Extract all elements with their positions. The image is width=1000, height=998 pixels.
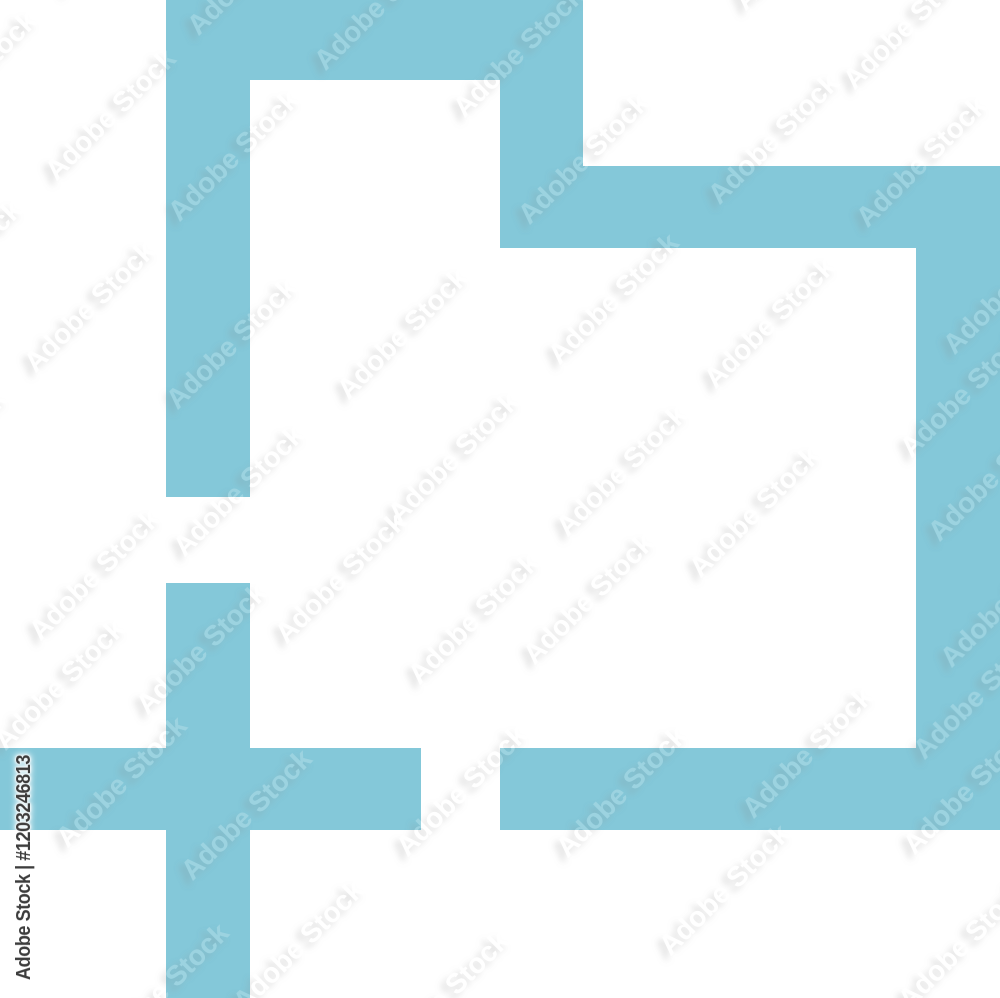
svg-text:Adobe Stock: Adobe Stock [181, 0, 324, 41]
svg-text:Adobe Stock: Adobe Stock [736, 681, 879, 824]
svg-text:Adobe Stock: Adobe Stock [227, 874, 370, 998]
svg-text:Adobe Stock: Adobe Stock [0, 5, 43, 148]
svg-text:Adobe Stock: Adobe Stock [934, 530, 1000, 673]
svg-text:Adobe Stock: Adobe Stock [837, 0, 980, 95]
svg-text:Adobe Stock: Adobe Stock [517, 527, 660, 670]
svg-text:Adobe Stock: Adobe Stock [175, 743, 318, 886]
svg-text:Adobe Stock: Adobe Stock [162, 84, 305, 227]
svg-text:Adobe Stock: Adobe Stock [0, 613, 131, 756]
svg-text:Adobe Stock: Adobe Stock [50, 710, 193, 853]
svg-text:Adobe Stock: Adobe Stock [698, 251, 841, 394]
svg-text:Adobe Stock: Adobe Stock [18, 235, 161, 378]
svg-text:Adobe Stock: Adobe Stock [92, 917, 235, 998]
svg-text:Adobe Stock: Adobe Stock [382, 386, 525, 529]
svg-text:Adobe Stock: Adobe Stock [308, 0, 451, 76]
svg-text:Adobe Stock: Adobe Stock [542, 227, 685, 370]
svg-text:Adobe Stock: Adobe Stock [269, 506, 412, 649]
svg-text:Adobe Stock: Adobe Stock [447, 0, 590, 123]
svg-text:Adobe Stock: Adobe Stock [390, 719, 533, 862]
svg-text:Adobe Stock: Adobe Stock [550, 399, 693, 542]
svg-text:Adobe Stock: Adobe Stock [850, 90, 993, 233]
svg-text:Adobe Stock: Adobe Stock [402, 547, 545, 690]
svg-text:Adobe Stock: Adobe Stock [728, 0, 871, 16]
svg-text:Adobe Stock: Adobe Stock [0, 194, 28, 337]
svg-text:Adobe Stock: Adobe Stock [653, 818, 796, 961]
svg-text:Adobe Stock: Adobe Stock [702, 67, 845, 210]
svg-text:Adobe Stock: Adobe Stock [331, 262, 474, 405]
svg-text:Adobe Stock: Adobe Stock [167, 419, 310, 562]
svg-text:Adobe Stock: Adobe Stock [160, 272, 303, 415]
svg-text:Adobe Stock: Adobe Stock [892, 872, 1000, 998]
svg-text:Adobe Stock: Adobe Stock [372, 925, 515, 998]
svg-text:Adobe Stock: Adobe Stock [23, 503, 166, 646]
svg-text:Adobe Stock: Adobe Stock [39, 43, 182, 186]
svg-text:Adobe Stock: Adobe Stock [130, 577, 273, 720]
svg-text:Adobe Stock: Adobe Stock [0, 383, 13, 526]
svg-text:Adobe Stock: Adobe Stock [512, 87, 655, 230]
svg-text:Adobe Stock: Adobe Stock [550, 720, 693, 863]
svg-text:Adobe Stock: Adobe Stock [683, 440, 826, 583]
svg-text:Adobe Stock: Adobe Stock [937, 217, 1000, 360]
